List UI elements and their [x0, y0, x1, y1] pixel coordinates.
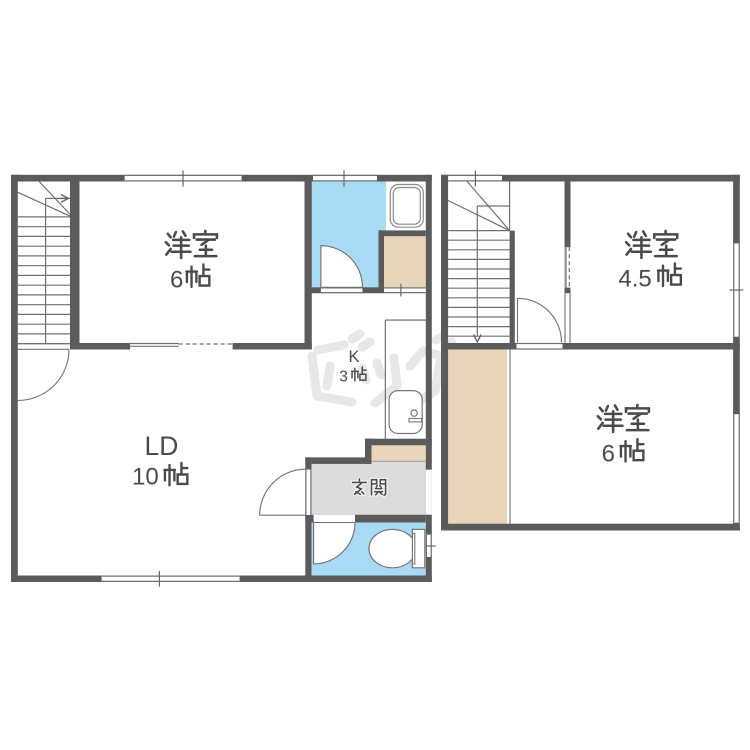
svg-text:K: K: [348, 348, 359, 366]
svg-text:10: 10: [132, 463, 159, 490]
svg-text:6: 6: [170, 266, 183, 293]
svg-text:6: 6: [602, 441, 615, 468]
svg-text:4.5: 4.5: [618, 265, 651, 292]
svg-text:3: 3: [339, 368, 348, 385]
svg-text:LD: LD: [145, 431, 179, 461]
